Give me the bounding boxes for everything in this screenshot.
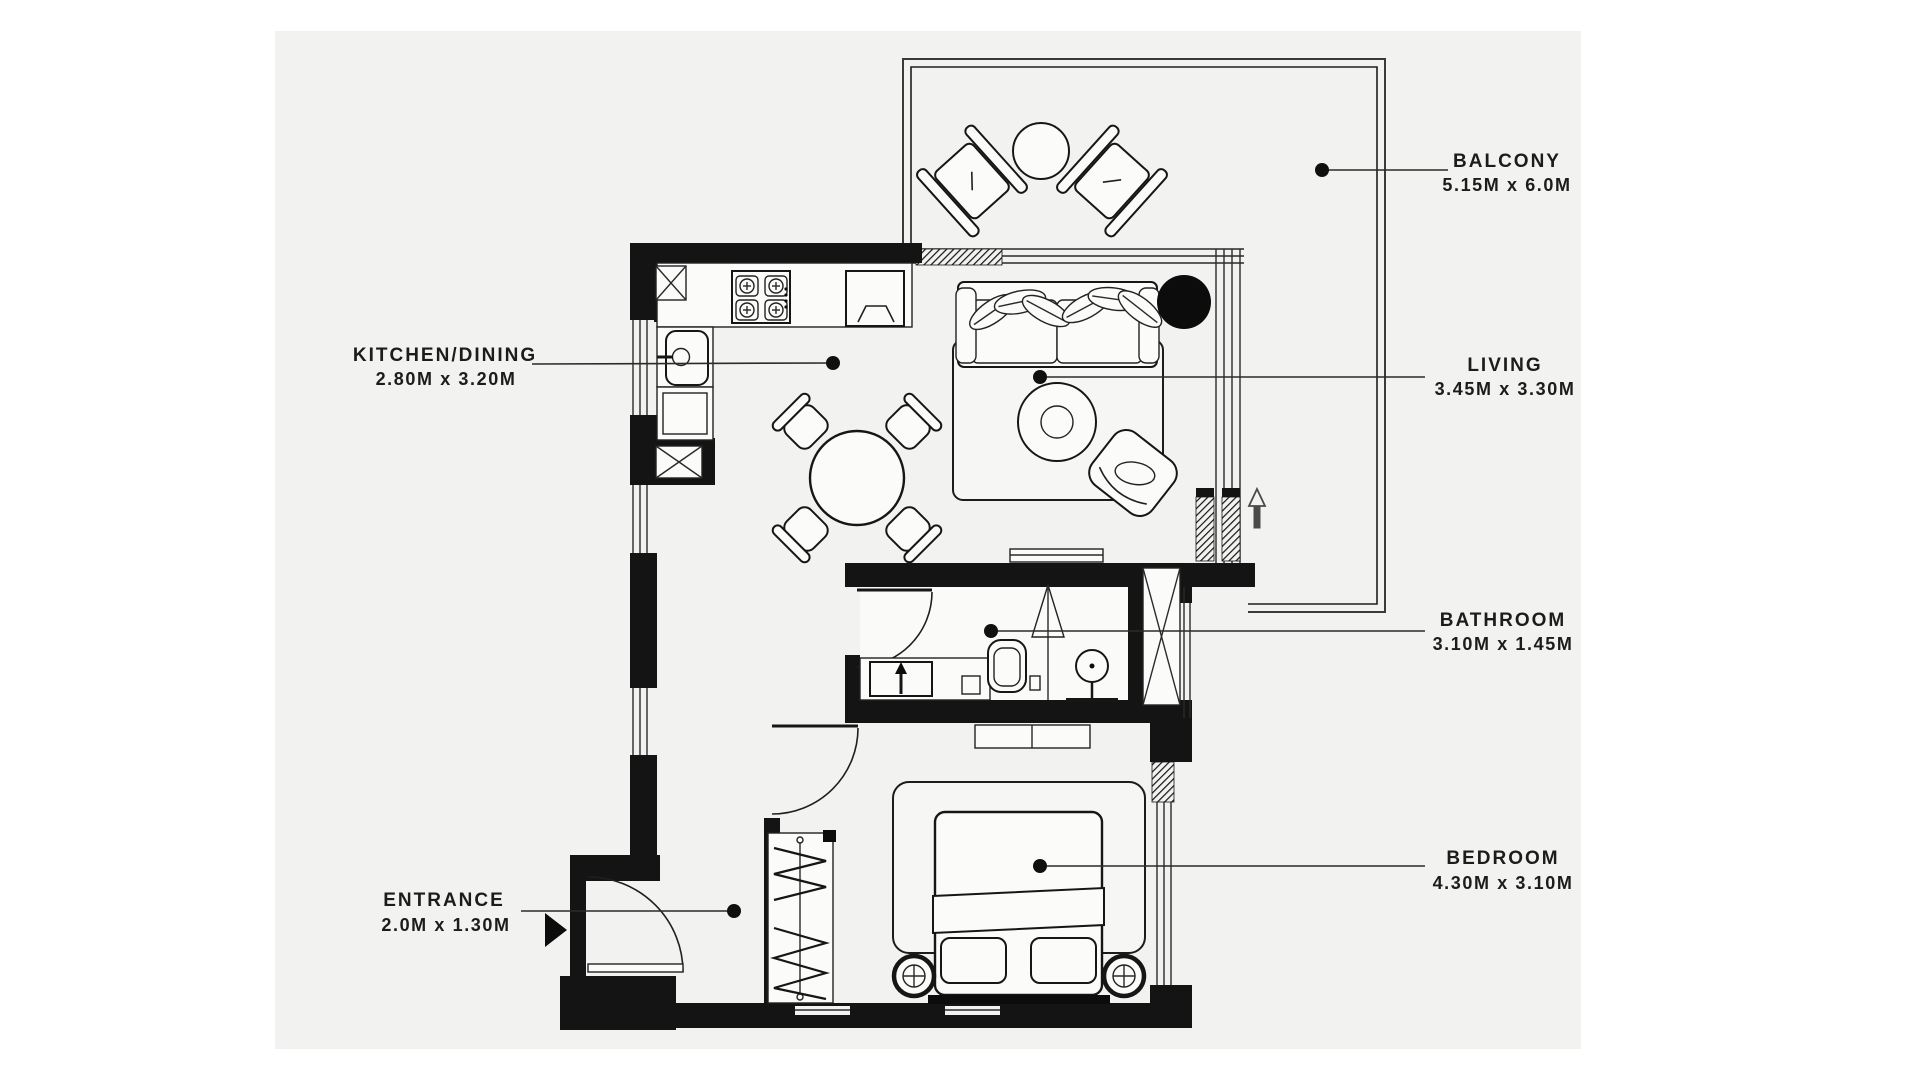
bathroom-sink-icon xyxy=(860,658,990,700)
sliding-door-hatch xyxy=(1196,497,1214,561)
window-hatch xyxy=(916,249,1002,265)
wardrobe-icon xyxy=(768,830,836,1003)
pillow-icon xyxy=(941,938,1006,983)
bed-icon xyxy=(928,812,1110,1004)
room-dims: 4.30M x 3.10M xyxy=(1433,873,1574,893)
stove-icon xyxy=(732,271,790,323)
pillow-icon xyxy=(1031,938,1096,983)
nightstand-icon xyxy=(1104,956,1144,996)
coffee-table-icon xyxy=(1018,383,1096,461)
fridge-icon xyxy=(846,271,904,326)
room-name: KITCHEN/DINING xyxy=(353,345,537,366)
dining-table-icon xyxy=(810,431,904,525)
washing-machine-icon xyxy=(657,387,713,440)
sofa-icon xyxy=(956,282,1167,367)
room-dims: 2.0M x 1.30M xyxy=(381,915,510,935)
room-dims: 3.45M x 3.30M xyxy=(1435,379,1576,399)
room-name: BALCONY xyxy=(1453,151,1561,172)
duct-box-icon xyxy=(656,446,702,478)
duct-box-icon xyxy=(656,266,686,300)
room-dims: 3.10M x 1.45M xyxy=(1433,634,1574,654)
shaft-closet xyxy=(1143,568,1180,705)
room-name: BATHROOM xyxy=(1440,610,1566,631)
plant-icon xyxy=(1157,275,1211,329)
sliding-door-hatch xyxy=(1222,497,1240,561)
floor-plan-svg: BALCONY 5.15M x 6.0M KITCHEN/DINING 2.80… xyxy=(0,0,1920,1080)
floor-plan-page: BALCONY 5.15M x 6.0M KITCHEN/DINING 2.80… xyxy=(0,0,1920,1080)
room-name: BEDROOM xyxy=(1446,848,1559,869)
dresser-icon xyxy=(975,725,1090,748)
room-name: LIVING xyxy=(1467,355,1542,376)
room-name: ENTRANCE xyxy=(383,890,505,911)
outdoor-table-icon xyxy=(1013,123,1069,179)
room-dims: 2.80M x 3.20M xyxy=(376,369,517,389)
room-dims: 5.15M x 6.0M xyxy=(1442,175,1571,195)
tv-console-icon xyxy=(1010,549,1103,562)
nightstand-icon xyxy=(894,956,934,996)
